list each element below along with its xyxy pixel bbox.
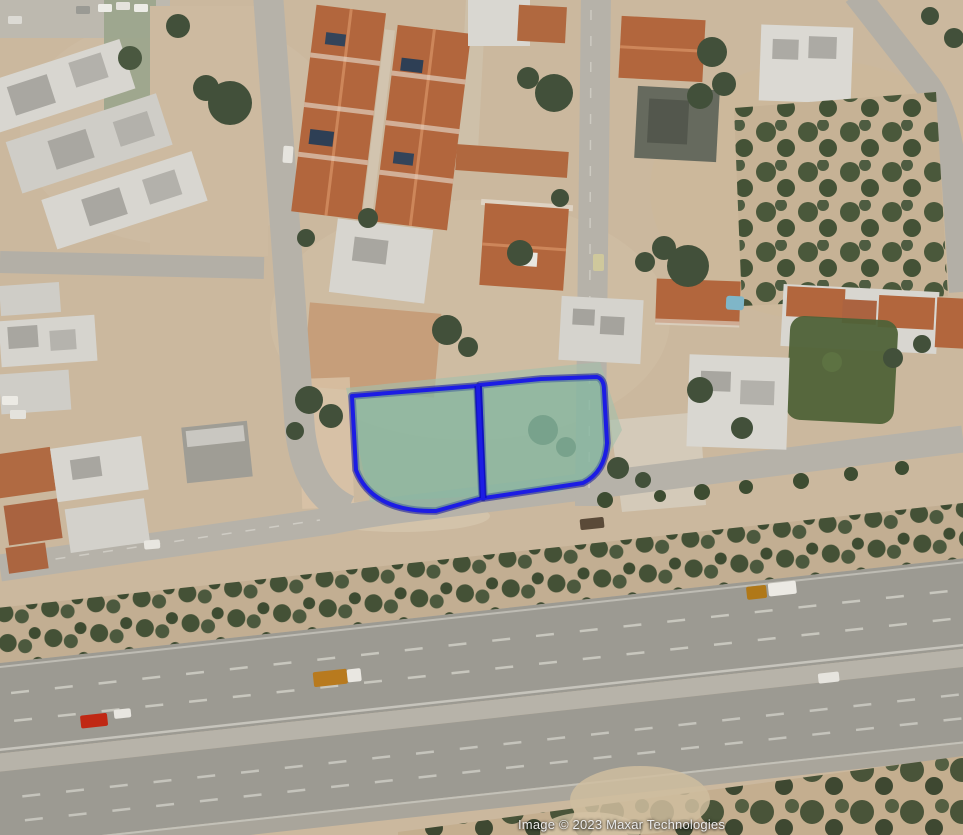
parcel-west [352, 386, 482, 511]
map-attribution: Image © 2023 Maxar Technologies [518, 817, 725, 832]
white-building-mid [329, 218, 433, 303]
orange-vehicle-right [746, 585, 767, 600]
terracotta-row-houses [291, 5, 472, 231]
swimming-pool [726, 296, 745, 311]
car-center-road [593, 254, 604, 271]
upper-left-street [0, 262, 264, 268]
solar-panels [309, 129, 335, 147]
parcel-east [480, 377, 607, 498]
map-viewport[interactable]: Image © 2023 Maxar Technologies [0, 0, 963, 835]
white-car-left [114, 708, 132, 719]
olive-grove [734, 92, 948, 306]
satellite-scene [0, 0, 963, 835]
gray-building [181, 421, 252, 484]
lawn [785, 315, 898, 425]
